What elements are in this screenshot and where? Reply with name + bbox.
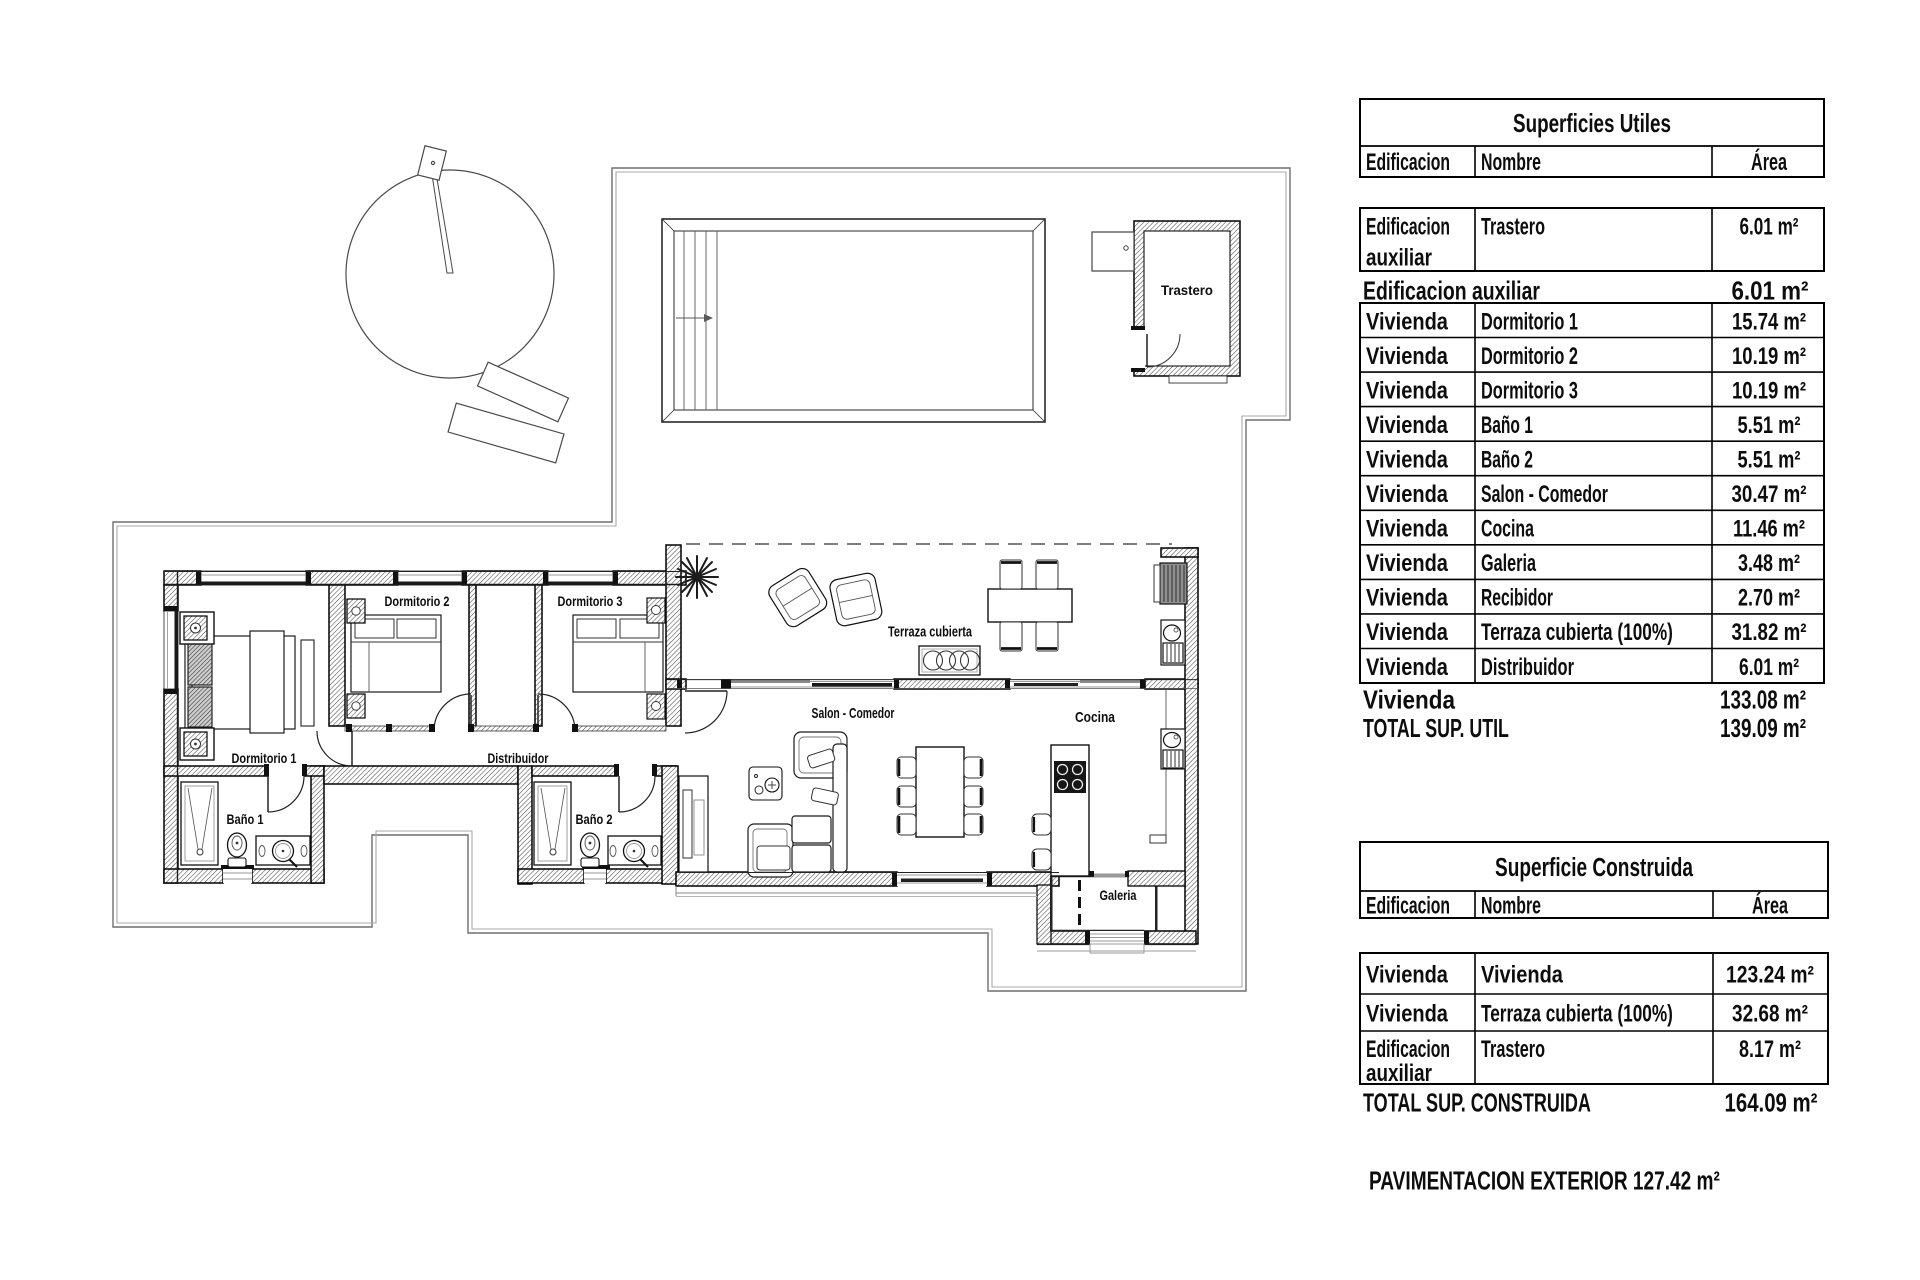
svg-text:Dormitorio 2: Dormitorio 2: [1481, 343, 1578, 370]
svg-text:Baño 2: Baño 2: [576, 812, 613, 828]
svg-text:10.19 m²: 10.19 m²: [1732, 376, 1806, 404]
svg-text:Vivienda: Vivienda: [1366, 584, 1448, 611]
svg-text:Trastero: Trastero: [1481, 1036, 1545, 1063]
svg-text:Superficie Construida: Superficie Construida: [1495, 852, 1693, 882]
svg-text:8.17 m²: 8.17 m²: [1739, 1035, 1801, 1062]
svg-text:10.19 m²: 10.19 m²: [1732, 341, 1806, 369]
svg-text:auxiliar: auxiliar: [1366, 1059, 1432, 1087]
svg-text:133.08 m²: 133.08 m²: [1720, 684, 1806, 714]
svg-text:Vivienda: Vivienda: [1366, 480, 1448, 507]
svg-text:Nombre: Nombre: [1481, 149, 1541, 176]
svg-text:Baño 1: Baño 1: [1481, 411, 1533, 438]
svg-text:5.51 m²: 5.51 m²: [1738, 445, 1801, 473]
svg-text:Vivienda: Vivienda: [1366, 446, 1448, 473]
svg-text:Edificacion: Edificacion: [1366, 149, 1450, 176]
svg-text:Terraza cubierta (100%): Terraza cubierta (100%): [1481, 1001, 1673, 1028]
svg-text:auxiliar: auxiliar: [1366, 243, 1432, 271]
svg-text:Edificacion auxiliar: Edificacion auxiliar: [1363, 276, 1540, 305]
svg-text:Dormitorio 3: Dormitorio 3: [558, 594, 623, 610]
svg-text:Cocina: Cocina: [1481, 515, 1534, 542]
svg-text:Salon - Comedor: Salon - Comedor: [812, 705, 895, 721]
svg-text:6.01 m²: 6.01 m²: [1740, 214, 1799, 241]
svg-text:Terraza cubierta: Terraza cubierta: [888, 623, 973, 640]
svg-text:Recibidor: Recibidor: [1481, 584, 1553, 611]
svg-text:Dormitorio 1: Dormitorio 1: [1481, 308, 1578, 335]
svg-text:Trastero: Trastero: [1161, 283, 1213, 298]
svg-text:6.01 m²: 6.01 m²: [1732, 277, 1809, 306]
svg-text:Vivienda: Vivienda: [1366, 961, 1448, 988]
svg-text:Dormitorio 3: Dormitorio 3: [1481, 377, 1578, 404]
svg-text:Trastero: Trastero: [1481, 213, 1545, 240]
svg-text:Vivienda: Vivienda: [1366, 411, 1448, 438]
svg-text:5.51 m²: 5.51 m²: [1738, 410, 1801, 438]
svg-text:Salon - Comedor: Salon - Comedor: [1481, 481, 1608, 508]
svg-text:Edificacion: Edificacion: [1366, 213, 1450, 240]
svg-text:30.47 m²: 30.47 m²: [1732, 480, 1807, 508]
svg-text:PAVIMENTACION EXTERIOR 127.42: PAVIMENTACION EXTERIOR 127.42 m²: [1369, 1166, 1720, 1196]
svg-text:Vivienda: Vivienda: [1366, 653, 1448, 680]
svg-text:11.46 m²: 11.46 m²: [1733, 514, 1805, 542]
svg-text:Vivienda: Vivienda: [1363, 686, 1455, 715]
svg-text:Vivienda: Vivienda: [1366, 1000, 1448, 1027]
svg-text:15.74 m²: 15.74 m²: [1732, 307, 1806, 335]
svg-text:Área: Área: [1751, 149, 1787, 176]
svg-text:Vivienda: Vivienda: [1366, 515, 1448, 542]
svg-text:Baño 2: Baño 2: [1481, 446, 1533, 473]
svg-text:123.24 m²: 123.24 m²: [1726, 960, 1814, 988]
svg-text:32.68 m²: 32.68 m²: [1732, 999, 1808, 1027]
svg-text:6.01 m²: 6.01 m²: [1739, 653, 1799, 681]
svg-text:TOTAL SUP. UTIL: TOTAL SUP. UTIL: [1363, 714, 1509, 743]
svg-text:Cocina: Cocina: [1075, 709, 1116, 725]
svg-text:Baño 1: Baño 1: [227, 812, 264, 828]
svg-text:Edificacion: Edificacion: [1366, 892, 1450, 919]
svg-text:Dormitorio 1: Dormitorio 1: [232, 751, 297, 767]
svg-text:3.48 m²: 3.48 m²: [1738, 549, 1800, 576]
svg-text:139.09 m²: 139.09 m²: [1720, 713, 1806, 743]
svg-text:Galeria: Galeria: [1481, 550, 1536, 577]
svg-text:Distribuidor: Distribuidor: [1481, 654, 1574, 681]
svg-text:Terraza cubierta (100%): Terraza cubierta (100%): [1481, 619, 1673, 646]
svg-text:Vivienda: Vivienda: [1366, 549, 1448, 576]
svg-text:Distribuidor: Distribuidor: [488, 751, 549, 767]
svg-text:31.82 m²: 31.82 m²: [1732, 618, 1807, 646]
svg-text:Galeria: Galeria: [1100, 888, 1138, 904]
svg-text:Dormitorio 2: Dormitorio 2: [385, 594, 450, 610]
svg-text:2.70 m²: 2.70 m²: [1738, 584, 1800, 611]
svg-text:Vivienda: Vivienda: [1481, 961, 1563, 988]
svg-text:164.09 m²: 164.09 m²: [1725, 1088, 1818, 1117]
svg-text:Vivienda: Vivienda: [1366, 376, 1448, 403]
svg-text:Vivienda: Vivienda: [1366, 342, 1448, 369]
svg-text:Vivienda: Vivienda: [1366, 307, 1448, 334]
svg-text:TOTAL SUP. CONSTRUIDA: TOTAL SUP. CONSTRUIDA: [1363, 1088, 1591, 1117]
svg-text:Nombre: Nombre: [1481, 892, 1541, 919]
svg-text:Superficies Utiles: Superficies Utiles: [1513, 108, 1671, 138]
svg-text:Vivienda: Vivienda: [1366, 618, 1448, 645]
svg-text:Área: Área: [1752, 892, 1788, 919]
